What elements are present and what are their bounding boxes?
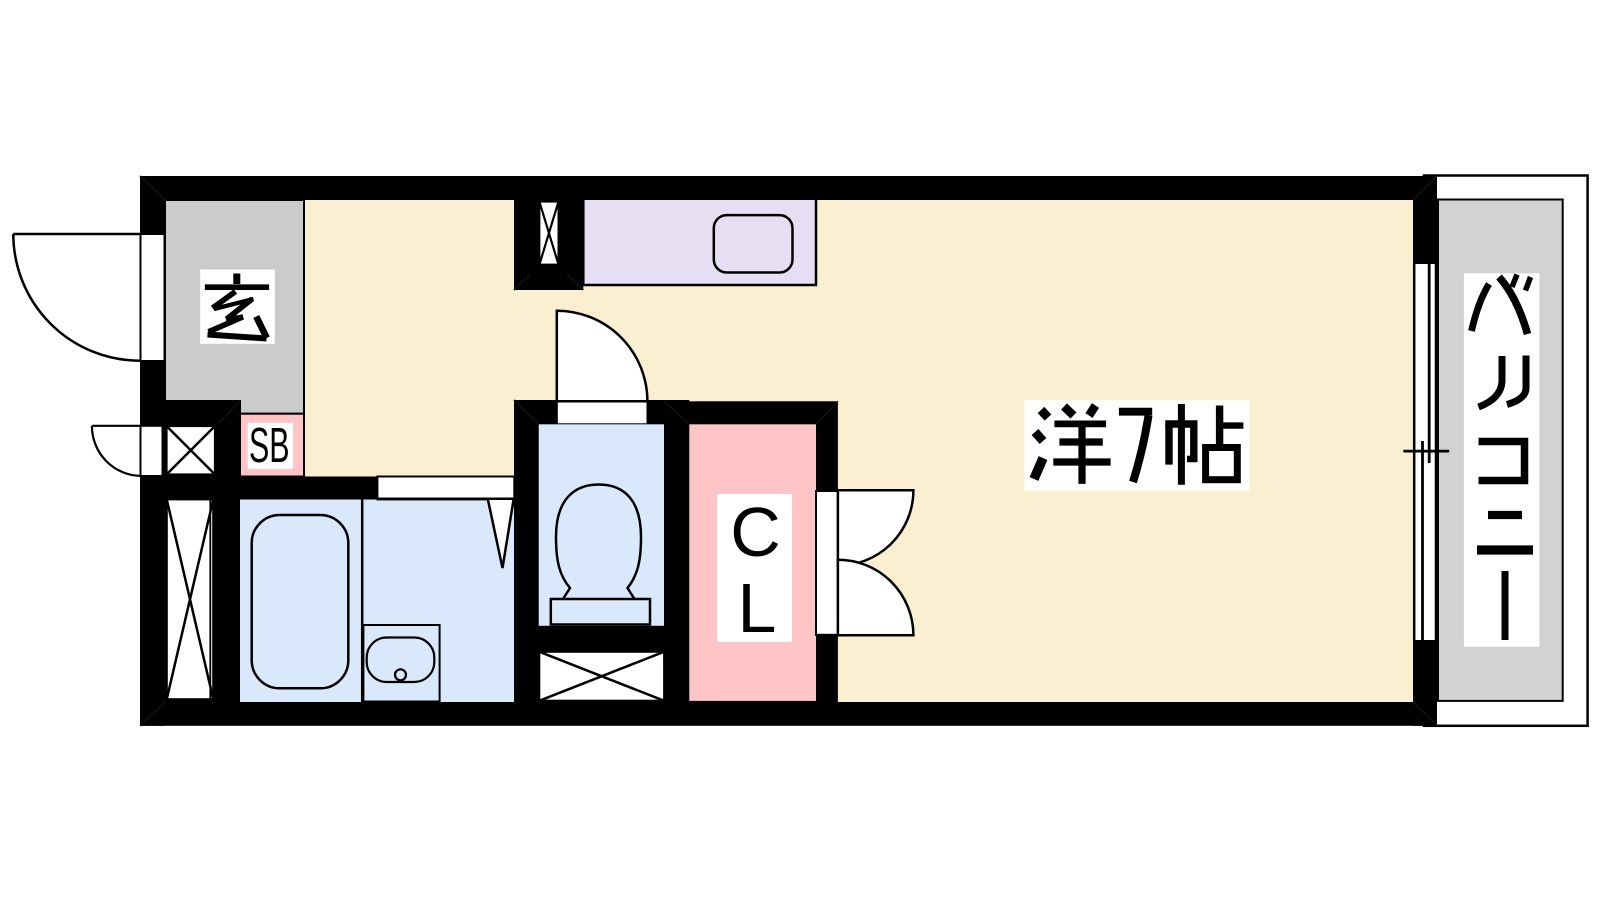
svg-text:SB: SB [249,418,290,473]
svg-text:C: C [730,493,781,571]
svg-text:L: L [738,569,777,647]
